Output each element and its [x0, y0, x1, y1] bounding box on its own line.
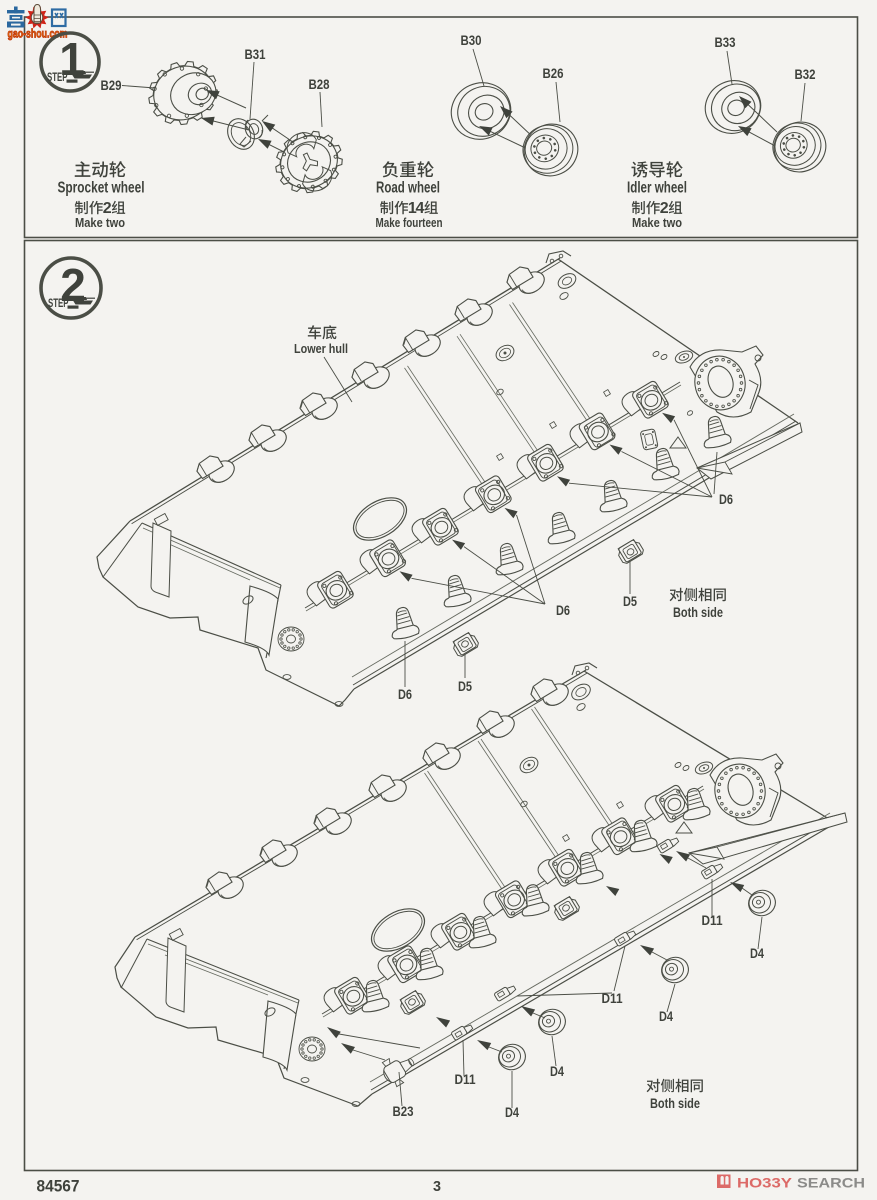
svg-text:B32: B32	[795, 67, 816, 82]
svg-text:D6: D6	[556, 603, 570, 618]
svg-text:D5: D5	[623, 594, 637, 609]
svg-text:B23: B23	[393, 1104, 414, 1119]
svg-text:Make fourteen: Make fourteen	[376, 216, 443, 230]
svg-text:SEARCH: SEARCH	[797, 1175, 865, 1191]
svg-text:Idler wheel: Idler wheel	[627, 180, 687, 197]
svg-text:3: 3	[433, 1179, 441, 1195]
svg-text:Both side: Both side	[650, 1096, 700, 1111]
svg-text:4: 4	[415, 200, 424, 217]
svg-text:B31: B31	[245, 47, 266, 62]
svg-text:2: 2	[660, 200, 669, 217]
svg-text:B30: B30	[461, 33, 482, 48]
svg-text:Lower hull: Lower hull	[294, 341, 348, 356]
svg-text:Make two: Make two	[75, 216, 125, 230]
svg-text:HO33Y: HO33Y	[737, 1175, 793, 1191]
svg-text:D11: D11	[455, 1072, 476, 1087]
svg-text:D5: D5	[458, 679, 472, 694]
svg-text:B29: B29	[101, 78, 122, 93]
svg-text:B26: B26	[543, 66, 564, 81]
svg-text:B33: B33	[715, 35, 736, 50]
svg-text:STEP: STEP	[48, 296, 69, 310]
svg-text:Make two: Make two	[632, 216, 682, 230]
svg-text:84567: 84567	[37, 1178, 80, 1196]
svg-text:STEP: STEP	[47, 70, 68, 84]
svg-text:Sprocket wheel: Sprocket wheel	[58, 180, 145, 197]
svg-text:D6: D6	[719, 492, 733, 507]
svg-text:D11: D11	[702, 913, 723, 928]
svg-text:D6: D6	[398, 687, 412, 702]
svg-text:D4: D4	[750, 946, 764, 961]
svg-text:D4: D4	[659, 1009, 673, 1024]
svg-text:Both side: Both side	[673, 605, 723, 620]
svg-text:B28: B28	[309, 77, 330, 92]
svg-text:D4: D4	[550, 1064, 564, 1079]
svg-text:D11: D11	[602, 991, 623, 1006]
svg-text:D4: D4	[505, 1105, 519, 1120]
svg-text:Road wheel: Road wheel	[376, 180, 440, 197]
svg-text:2: 2	[103, 200, 112, 217]
